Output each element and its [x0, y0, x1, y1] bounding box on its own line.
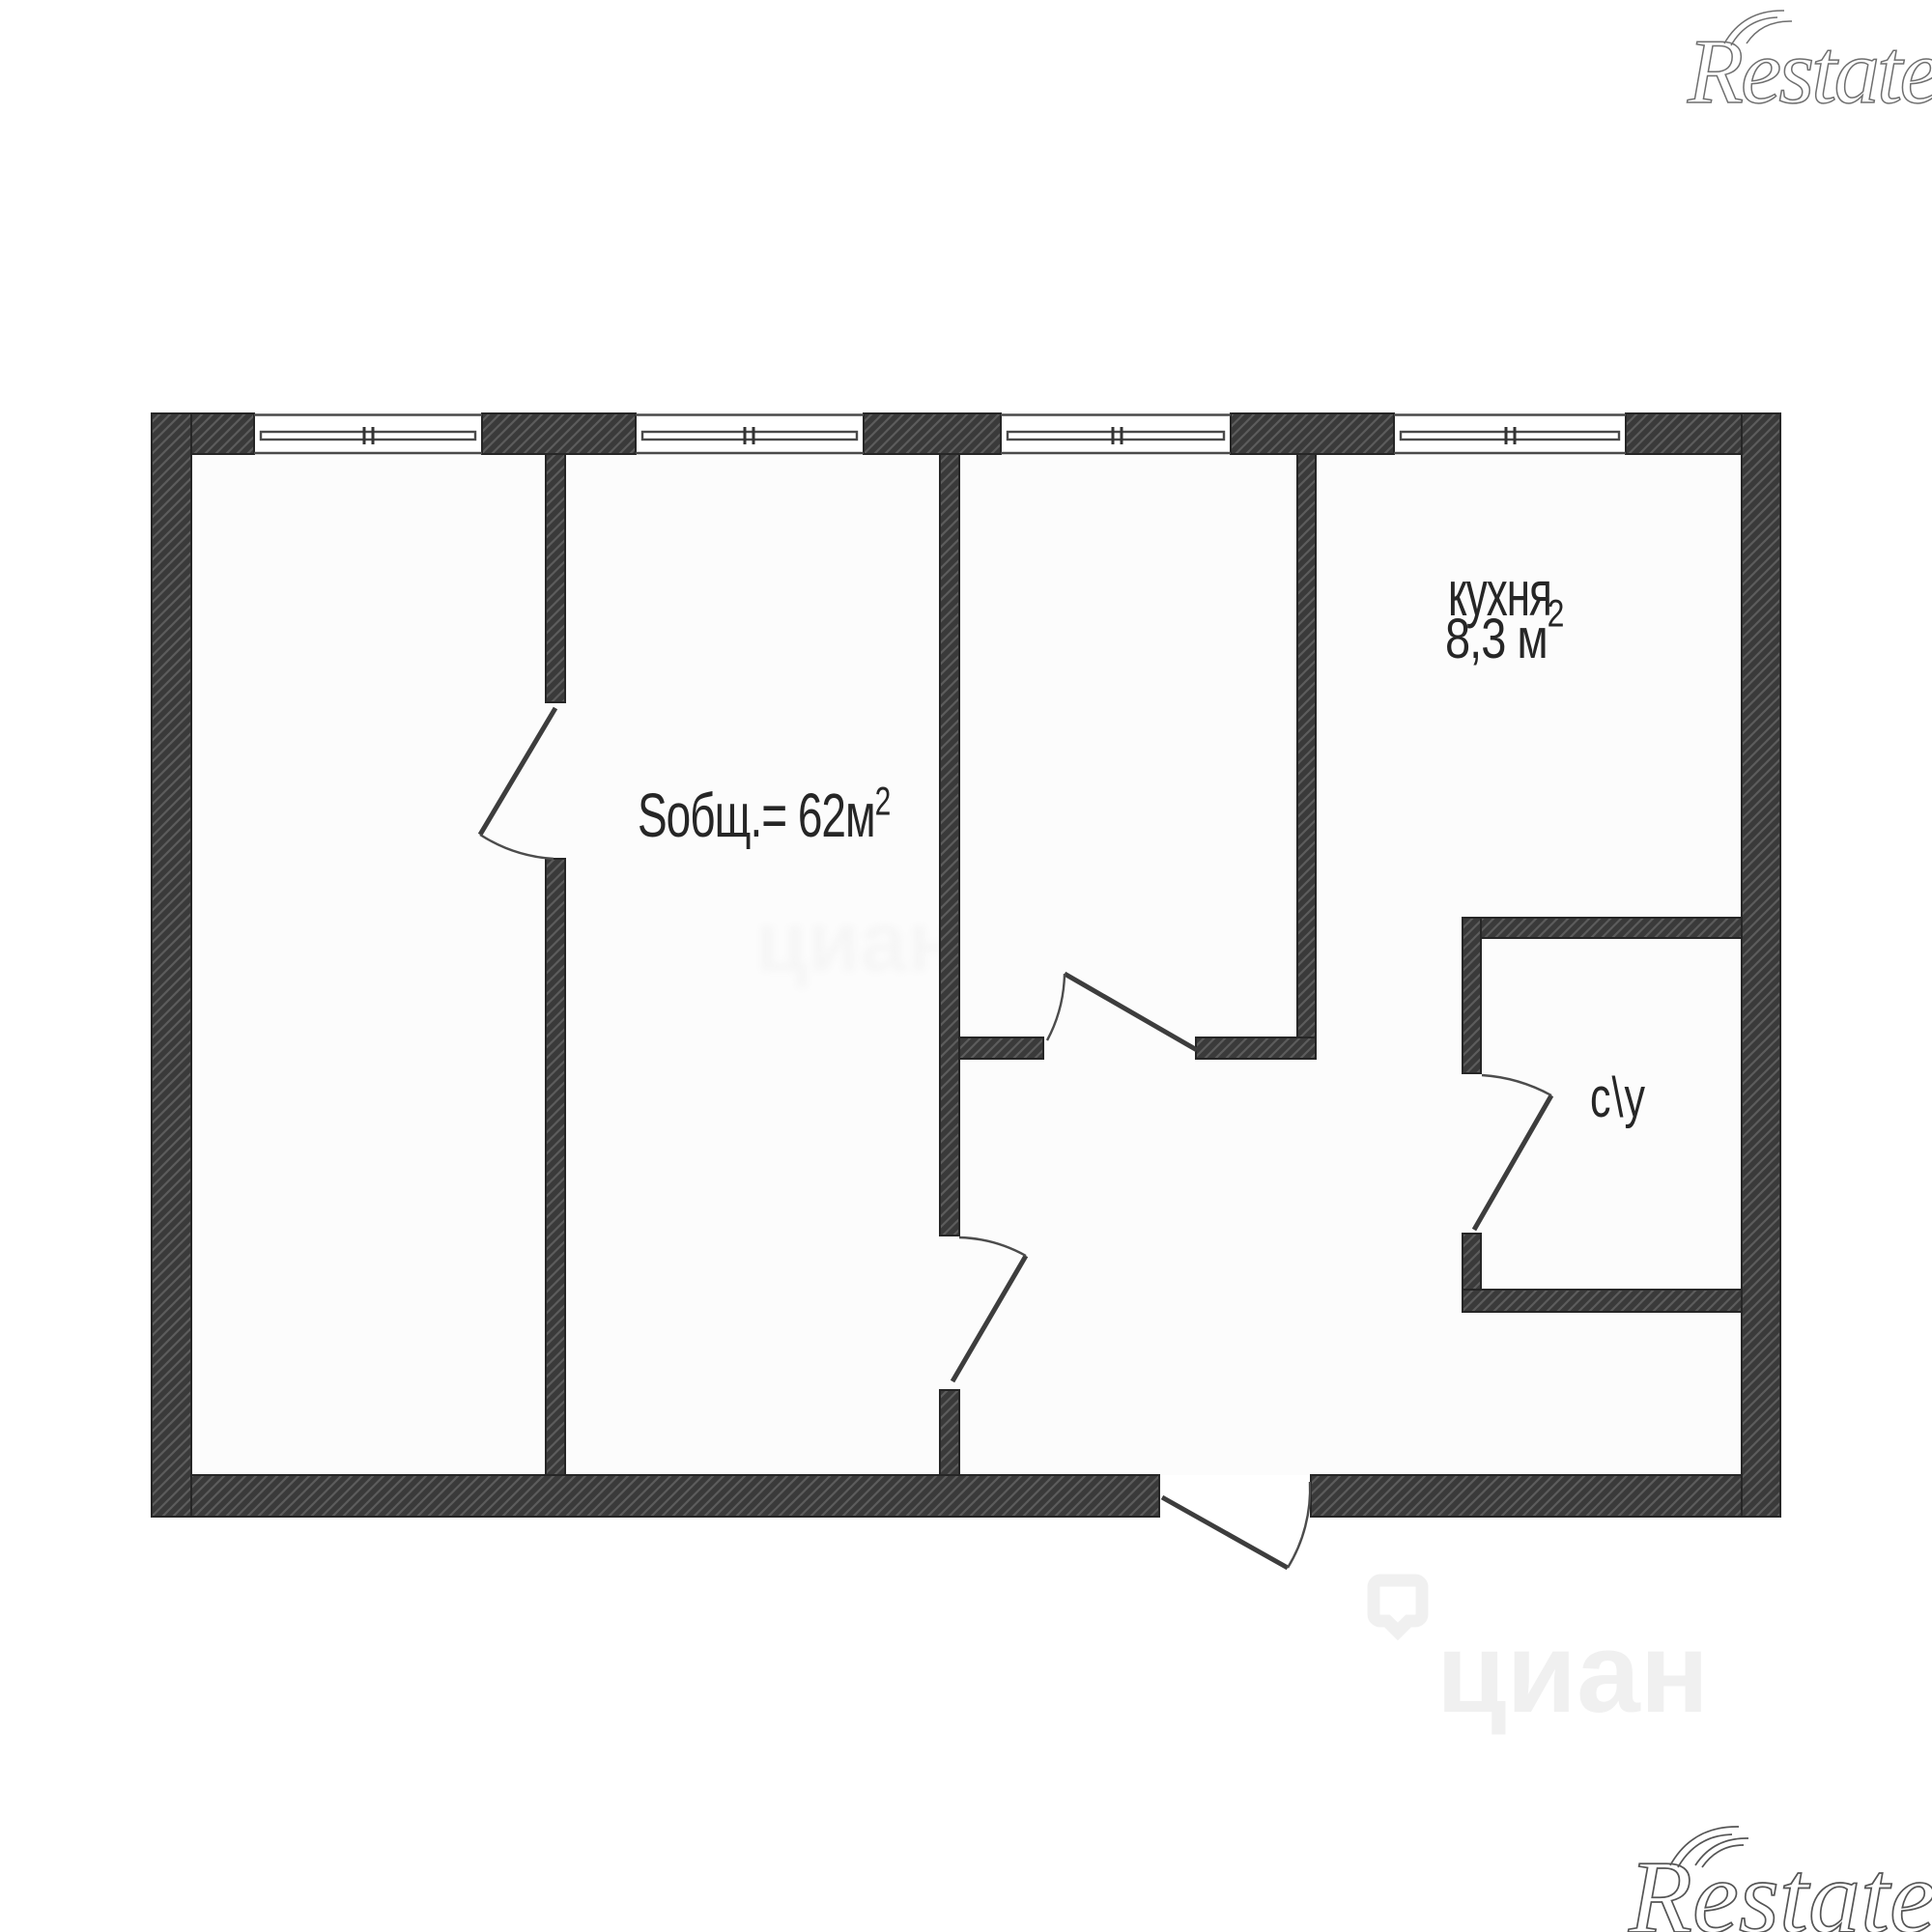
svg-text:Restate: Restate [1628, 1840, 1932, 1932]
svg-text:Sобщ.= 62м2: Sобщ.= 62м2 [638, 779, 890, 850]
svg-text:Restate: Restate [1687, 20, 1932, 123]
svg-text:циан: циан [755, 894, 958, 989]
svg-text:с\у: с\у [1590, 1066, 1646, 1129]
svg-text:циан: циан [1436, 1609, 1709, 1737]
